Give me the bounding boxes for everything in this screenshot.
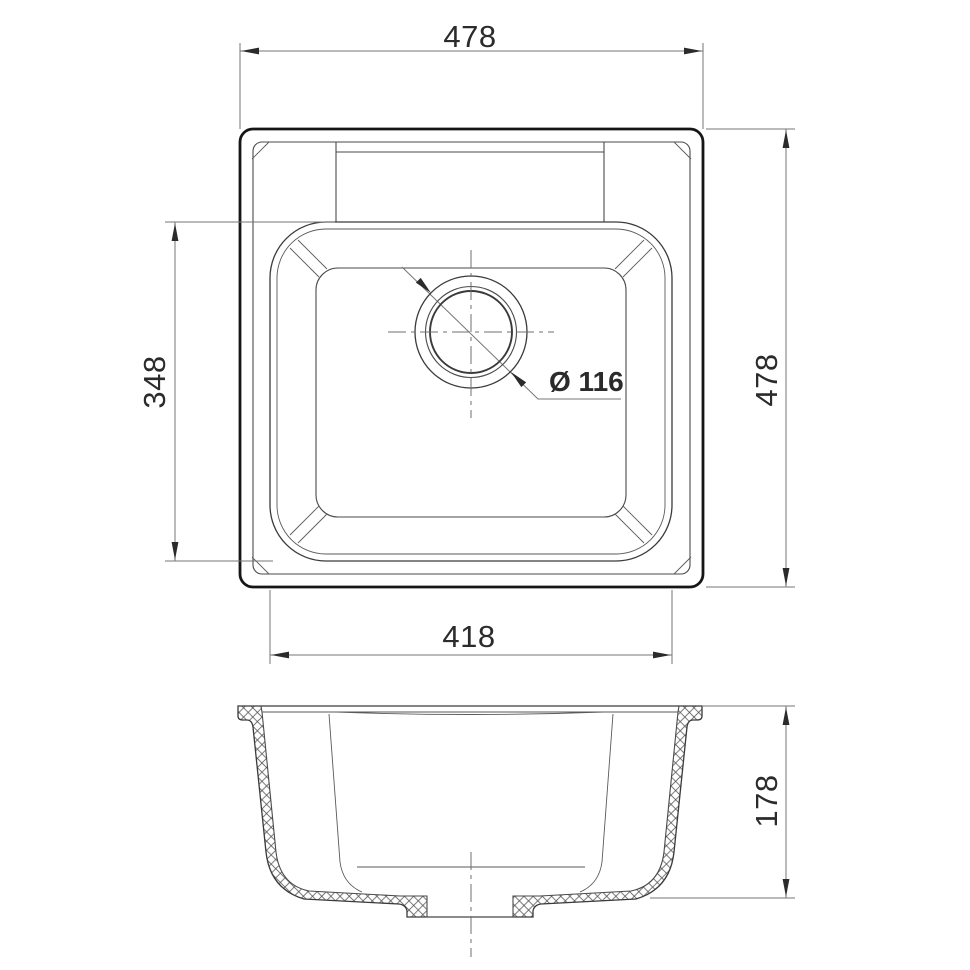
- right-wall-inner-line: [580, 714, 613, 892]
- dimension-bowl-depth: 348: [137, 222, 335, 561]
- drain-arrow-lower: [509, 370, 527, 388]
- sink-technical-drawing: Ø 116 478 478 348 418: [0, 0, 970, 970]
- dimension-overall-width: 478: [240, 19, 703, 129]
- dimension-overall-depth: 478: [706, 129, 795, 587]
- section-view: [238, 706, 702, 957]
- bowl-depth-label: 348: [137, 355, 172, 408]
- dimension-bowl-width: 418: [270, 590, 672, 664]
- left-wall-inner-line: [329, 714, 362, 892]
- faucet-deck: [336, 142, 604, 222]
- bowl-width-label: 418: [442, 619, 495, 654]
- section-hatch: [238, 706, 702, 917]
- drawing-canvas: Ø 116 478 478 348 418: [0, 0, 970, 970]
- overall-depth-label: 478: [749, 353, 784, 406]
- section-outer-profile: [238, 706, 702, 917]
- drain-diameter-label: Ø 116: [549, 366, 624, 397]
- plan-view: Ø 116: [240, 129, 703, 587]
- overall-width-label: 478: [443, 19, 496, 54]
- drain-arrow-upper: [416, 278, 434, 296]
- overall-height-label: 178: [749, 774, 784, 827]
- section-inner-profile: [261, 706, 679, 917]
